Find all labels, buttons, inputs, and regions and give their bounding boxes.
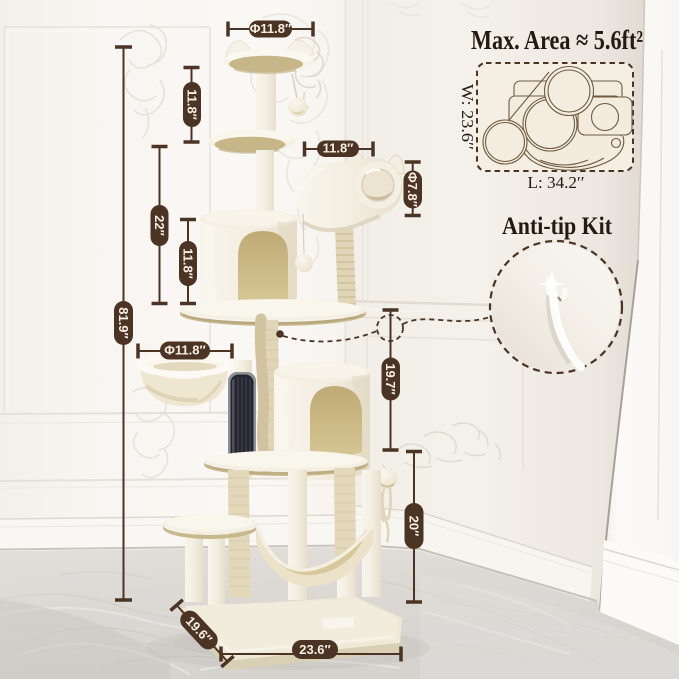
svg-text:11.8″: 11.8″ xyxy=(185,89,200,120)
svg-text:20″: 20″ xyxy=(407,516,422,537)
svg-text:Φ11.8″: Φ11.8″ xyxy=(250,21,291,36)
svg-text:23.6″: 23.6″ xyxy=(299,642,331,657)
svg-text:22″: 22″ xyxy=(152,215,167,236)
svg-text:L: 34.2′′: L: 34.2′′ xyxy=(528,173,585,192)
svg-text:Φ11.8″: Φ11.8″ xyxy=(164,343,205,358)
svg-text:11.8″: 11.8″ xyxy=(323,141,354,156)
svg-text:19.7″: 19.7″ xyxy=(383,363,398,395)
svg-text:11.8″: 11.8″ xyxy=(181,248,196,279)
svg-text:Max. Area ≈ 5.6ft²: Max. Area ≈ 5.6ft² xyxy=(471,25,643,55)
svg-text:81.9″: 81.9″ xyxy=(116,307,131,339)
svg-text:Φ7.8″: Φ7.8″ xyxy=(405,172,420,207)
svg-text:Anti-tip Kit: Anti-tip Kit xyxy=(502,213,613,240)
svg-text:W: 23.6′′: W: 23.6′′ xyxy=(458,84,477,150)
